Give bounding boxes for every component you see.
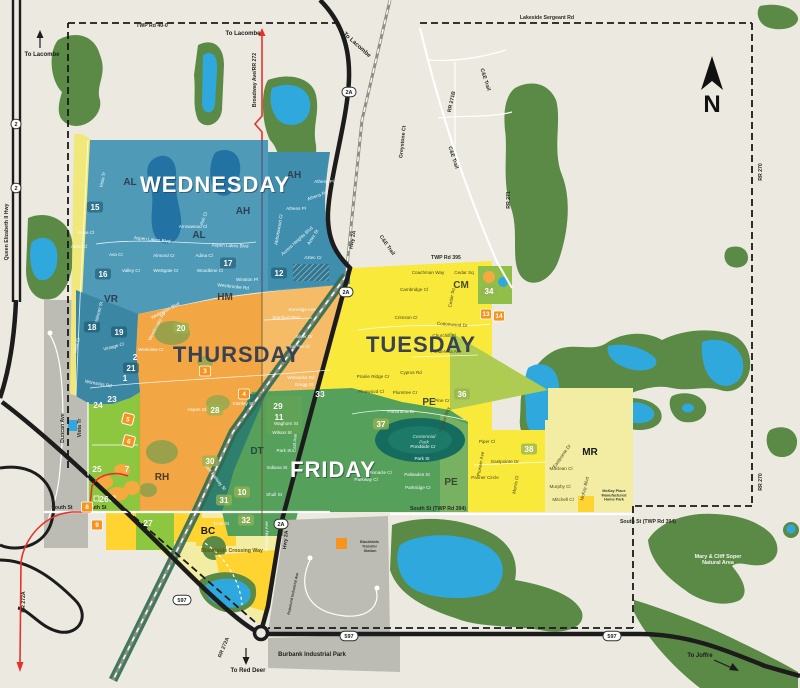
map-label: Prairie Ridge Cr: [357, 374, 390, 379]
map-label: Trout St: [213, 521, 230, 526]
map-label: Broadway Ave: [264, 521, 269, 551]
neighborhood-code-MR: MR: [582, 447, 598, 458]
zone-marker-18: 18: [84, 322, 100, 333]
pond: [68, 420, 77, 431]
forest-area: [767, 427, 797, 457]
zone-marker-8: 8: [82, 502, 93, 512]
map-label: Vista Tr: [77, 419, 83, 438]
map-label: RR 270: [758, 163, 764, 181]
map-label: Park St: [414, 456, 430, 461]
marker-number: 2: [133, 352, 138, 362]
map-label: Lakeside Sergeant Rd: [520, 15, 574, 21]
map-label: Silver Dr: [295, 334, 313, 339]
map-label: Duncan Ave: [60, 413, 66, 443]
park-pond: [139, 483, 157, 497]
zone-marker-15: 15: [87, 202, 103, 213]
map-label: Aspen Dr: [187, 407, 207, 412]
zone-marker-32: 32: [238, 515, 254, 526]
map-label: RR 271: [506, 191, 512, 209]
map-label: Pine Cr: [434, 398, 450, 403]
neighborhood-code-DT: DT: [250, 446, 263, 457]
highway-shield-2A: 2A: [342, 87, 356, 97]
marker-number: 25: [92, 464, 102, 474]
map-label: McKay PlaceManufacturedHome Park: [602, 489, 628, 502]
zone-marker-23: 23: [107, 394, 117, 404]
map-label: Pondside Cr: [410, 444, 436, 449]
map-label: Stanford Blvd: [272, 315, 300, 320]
road-end-dot: [308, 556, 313, 561]
neighborhood-code-CM: CM: [453, 280, 469, 291]
map-label: TWP Rd 395: [431, 255, 461, 261]
map-label: Cyprus Rd: [400, 370, 422, 375]
marker-number: 19: [115, 328, 124, 337]
map-label: Burbank Industrial Park: [278, 652, 346, 658]
map-label: Murphy Cl: [550, 484, 571, 489]
map-label: Coachman Way: [412, 270, 445, 275]
zone-marker-3: 3: [200, 366, 211, 376]
facility-diamond-icon: 6: [122, 434, 135, 447]
zone-marker-9: 9: [92, 520, 103, 530]
map-label: Womacks Rd: [287, 375, 315, 380]
neighborhood-code-PE: PE: [444, 477, 458, 488]
road-end-dot: [48, 331, 53, 336]
highway-shield-597: 597: [173, 595, 191, 605]
marker-number: 14: [495, 313, 503, 320]
neighborhood-code-VR: VR: [104, 294, 119, 305]
marker-number: 32: [242, 516, 251, 525]
transfer-station-icon: [336, 538, 347, 549]
shield-number: 2A: [345, 90, 352, 96]
roundabout: [255, 627, 268, 640]
blackfalds-collection-zone-map: N Blackfalds Transfer Station TWP Rd 40-…: [0, 0, 800, 688]
map-label: RR 270: [758, 473, 764, 491]
zone-marker-25: 25: [92, 464, 102, 474]
map-label: Palmer Circle: [471, 475, 499, 480]
zone-marker-30: 30: [202, 456, 218, 467]
zone-marker-34: 34: [481, 286, 497, 297]
orchard-blob: [124, 481, 140, 495]
marker-number: 31: [220, 496, 229, 505]
marker-number: 38: [525, 445, 534, 454]
zone-marker-5: 5: [121, 412, 134, 425]
zone-marker-6: 6: [122, 434, 135, 447]
map-label: To Lacombe: [25, 52, 61, 58]
marker-number: 18: [88, 323, 97, 332]
marker-number: 21: [127, 364, 136, 373]
map-label: Shull St: [266, 492, 283, 497]
map-label: Cambridge Cl: [400, 287, 428, 292]
map-label: Broadway Ave/RR 272: [252, 53, 258, 108]
map-label: To Lacombe: [226, 31, 262, 37]
zone-marker-19: 19: [111, 327, 127, 338]
map-label: Athens Pl: [286, 206, 306, 211]
zone-marker-27: 27: [143, 518, 153, 528]
map-label: Park St: [276, 448, 292, 453]
zone-marker-37: 37: [373, 419, 389, 430]
map-label: Almond Cr: [153, 253, 175, 258]
friday-zone-title: FRIDAY: [290, 457, 376, 482]
lake: [202, 53, 217, 112]
facility-diamond-icon: 5: [121, 412, 134, 425]
map-label: Woodbine Cl: [197, 268, 223, 273]
lake: [682, 404, 694, 413]
map-label: Piper Cl: [479, 439, 495, 444]
zone-marker-28: 28: [207, 405, 223, 416]
zone-marker-4: 4: [239, 389, 250, 399]
friday-block: [266, 396, 302, 434]
marker-number: 9: [95, 522, 99, 529]
neighborhood-code-AL: AL: [192, 230, 205, 241]
forest-area: [724, 246, 748, 267]
highway-shield-2A: 2A: [274, 519, 288, 529]
zone-marker-13: 13: [481, 309, 492, 319]
thursday-zone-title: THURSDAY: [173, 342, 301, 367]
map-label: Cedar Sq: [454, 270, 474, 275]
marker-number: 13: [482, 311, 490, 318]
zone-marker-7: 7: [125, 464, 130, 474]
zone-marker-20: 20: [173, 323, 189, 334]
zone-marker-24: 24: [93, 400, 103, 410]
highway-shield-2: 2: [11, 183, 21, 193]
neighborhood-code-AH: AH: [236, 206, 250, 217]
map-label: Winston Pl: [236, 277, 258, 282]
forest-area: [52, 35, 103, 126]
marker-number: 24: [93, 400, 103, 410]
marker-number: 16: [99, 270, 108, 279]
marker-number: 15: [91, 203, 100, 212]
zone-marker-11: 11: [275, 412, 284, 422]
marker-number: 7: [125, 464, 130, 474]
map-label: Aztec Cr: [304, 255, 322, 260]
marker-number: 1: [123, 373, 128, 383]
map-label: Ava Cr: [109, 252, 123, 257]
map-label: Sunridge Ave: [288, 307, 316, 312]
marker-number: 36: [458, 390, 467, 399]
tuesday-zone-title: TUESDAY: [366, 332, 476, 357]
zone-marker-2: 2: [133, 352, 138, 362]
map-label: Arlen Cl: [71, 244, 87, 249]
map-label: To Joffre: [687, 653, 713, 659]
map-label: Parkridge Cr: [405, 485, 431, 490]
zone-marker-17: 17: [220, 258, 236, 269]
compass-n-label: N: [703, 91, 720, 118]
zone-marker-38: 38: [521, 444, 537, 455]
map-label: Anna Cl: [78, 230, 94, 235]
map-label: Westview Cr: [138, 347, 164, 352]
zone-marker-21: 21: [123, 363, 139, 374]
marker-number: 20: [177, 324, 186, 333]
neighborhood-code-AL: AL: [123, 177, 136, 188]
zone-marker-33: 33: [315, 389, 325, 399]
marker-number: 8: [85, 504, 89, 511]
neighborhood-code-BC: BC: [201, 526, 215, 537]
zone-marker-26: 26: [99, 494, 109, 504]
map-label: Eastpointe Dr: [491, 459, 519, 464]
zone-marker-16: 16: [95, 269, 111, 280]
park-pond: [146, 440, 178, 464]
zone-marker-14: 14: [494, 311, 505, 321]
map-label: TWP Rd 40-0: [136, 23, 168, 29]
zone-marker-10: 10: [234, 487, 250, 498]
zone-marker-29: 29: [273, 401, 283, 411]
wednesday-zone-title: WEDNESDAY: [140, 172, 290, 197]
shield-number: 597: [607, 634, 616, 640]
zone-marker-31: 31: [216, 495, 232, 506]
map-label: Westgate Cr: [153, 268, 179, 273]
shield-number: 2A: [342, 290, 349, 296]
map-label: Queen Elizabeth II Hwy: [4, 203, 10, 260]
marker-number: 34: [485, 287, 494, 296]
map-label: Panorama Dr: [387, 409, 415, 414]
marker-number: 29: [273, 401, 283, 411]
shield-number: 2: [14, 186, 17, 192]
hatched-area-pattern: [293, 264, 329, 281]
marker-number: 26: [99, 494, 109, 504]
neighborhood-code-HM: HM: [217, 292, 233, 303]
map-label: Maclean Cl: [550, 466, 573, 471]
map-label: Mitchell Cl: [552, 497, 573, 502]
map-label: South St (TWP Rd 394): [620, 519, 676, 525]
marker-number: 11: [275, 412, 284, 422]
map-label: Blackfalds Crossing Way: [201, 548, 263, 554]
lake: [787, 525, 796, 534]
road-end-dot: [375, 586, 380, 591]
map-label: Palisades St: [404, 472, 430, 477]
map-label: Wilson St: [272, 430, 292, 435]
highway-shield-2: 2: [11, 119, 21, 129]
zone-marker-36: 36: [454, 389, 470, 400]
marker-number: 33: [315, 389, 325, 399]
marker-number: 28: [211, 406, 220, 415]
map-label: South St (TWP Rd 394): [410, 506, 466, 512]
park-feature: [483, 271, 495, 283]
map-label: To Red Deer: [231, 668, 267, 674]
map-label: Crimson Cl: [395, 315, 418, 320]
highway-shield-597: 597: [603, 631, 621, 641]
green-block: [136, 512, 174, 550]
neighborhood-code-RH: RH: [155, 472, 169, 483]
marker-number: 37: [377, 420, 386, 429]
map-label: Plumtree Cr: [393, 390, 418, 395]
marker-number: 3: [203, 368, 207, 375]
shield-number: 2A: [277, 522, 284, 528]
marker-number: 23: [107, 394, 117, 404]
map-label: Valley Cr: [122, 268, 141, 273]
map-label: RR 272A: [21, 591, 27, 613]
shield-number: 597: [344, 634, 353, 640]
map-label: Stanley St: [233, 401, 255, 406]
marker-number: 10: [238, 488, 247, 497]
marker-number: 27: [143, 518, 153, 528]
map-label: Athens Pl: [314, 179, 334, 184]
zone-marker-12: 12: [271, 268, 287, 279]
map-label: Gregg St: [295, 382, 314, 387]
highway-shield-597: 597: [340, 631, 358, 641]
zone-marker-1: 1: [123, 373, 128, 383]
map-label: South St: [51, 505, 73, 511]
neighborhood-code-PE: PE: [422, 397, 436, 408]
map-label: Adina Cl: [195, 253, 212, 258]
map-label: Indiana St: [267, 465, 288, 470]
marker-number: 30: [206, 457, 215, 466]
highway-shield-2A: 2A: [339, 287, 353, 297]
map-canvas: N Blackfalds Transfer Station TWP Rd 40-…: [0, 0, 800, 688]
marker-number: 4: [242, 391, 246, 398]
marker-number: 12: [275, 269, 284, 278]
map-label: Pinewood Cl: [358, 389, 384, 394]
marker-number: 17: [224, 259, 233, 268]
shield-number: 2: [14, 122, 17, 128]
shield-number: 597: [177, 598, 186, 604]
